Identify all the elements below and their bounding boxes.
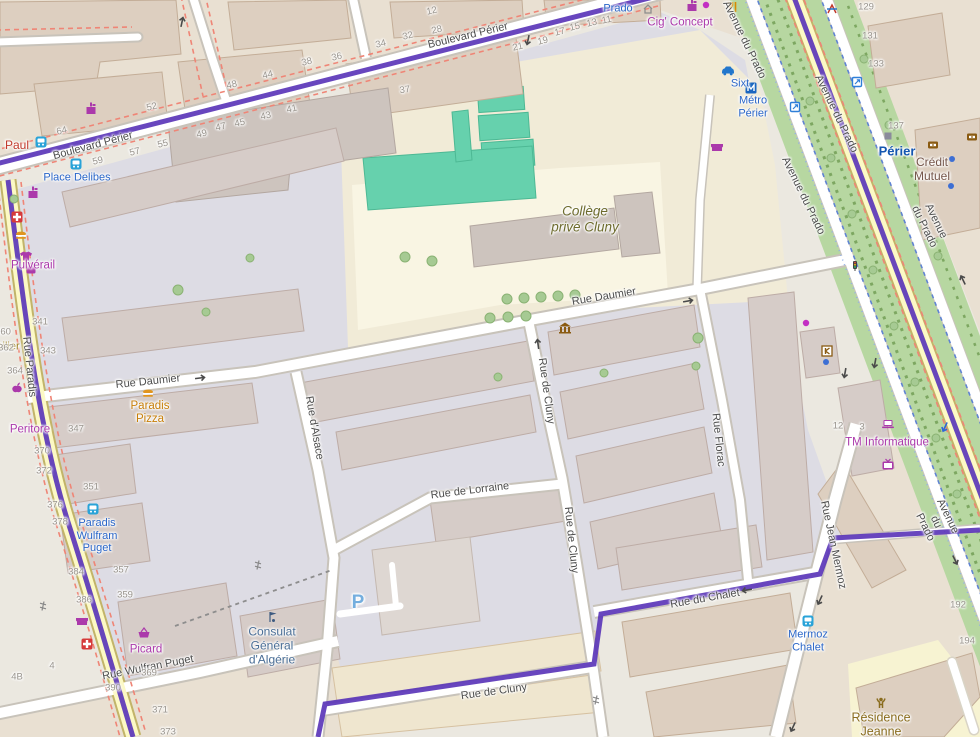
shop-icon [76,618,88,625]
clothes-shop-icon [20,252,32,261]
bag-shop-icon [27,264,36,274]
oneway-arrow-icon [535,339,542,349]
gate-icon [593,696,599,705]
oneway-arrow-icon [524,35,531,45]
metro-icon [746,83,757,94]
fast-food-icon [16,232,26,239]
computer-shop-icon [882,420,894,428]
atm-icon [967,134,977,141]
shop-building-icon [688,0,697,11]
oneway-arrow-icon [742,586,752,593]
oneway-arrow-icon [178,17,185,27]
traffic-signals-icon [853,261,857,271]
cycle-arrow-icon [941,421,950,432]
oneway-arrow-icon [959,275,968,286]
poi-dot-blue [948,183,954,189]
oneway-arrow-icon [683,297,693,304]
oneway-arrow-icon [816,594,825,605]
oneway-arrow-icon [195,375,205,382]
consulate-flag-icon [270,612,277,622]
atm-icon [928,142,938,149]
poi-dot-blue [823,359,829,365]
map-canvas[interactable]: Boulevard PérierBoulevard PérierAvenue d… [0,0,980,737]
interchange-icon [853,78,862,87]
bus-stop-icon [36,137,47,148]
playground-icon [827,5,837,13]
poi-dot-magenta [803,320,809,326]
pharmacy-icon [12,212,23,223]
supermarket-icon [139,628,150,638]
map-icon-layer [0,0,980,737]
kiosk-icon [822,346,832,356]
oneway-arrow-icon [950,554,959,565]
car-rental-icon [722,67,734,76]
bus-stop-icon [71,159,82,170]
department-store-icon [29,187,38,199]
greengrocer-icon [12,383,21,393]
shop-icon [711,144,723,151]
bus-stop-icon [88,504,99,515]
poi-dot-magenta [703,2,709,8]
fast-food-icon [143,390,153,397]
social-facility-icon [877,698,885,708]
interchange-icon [791,103,800,112]
gate-icon [40,602,46,611]
gate-icon [255,561,261,570]
oneway-arrow-icon [789,721,798,732]
restaurant-icon [729,2,736,12]
community-building-icon [559,323,571,334]
electronics-shop-icon [883,459,894,470]
department-store-icon [87,103,96,115]
pharmacy-icon [82,639,93,650]
oneway-arrow-icon [871,358,878,368]
bus-stop-icon [803,616,814,627]
oneway-arrow-icon [841,368,848,378]
home-icon [644,5,652,13]
poi-dot-blue [949,156,955,162]
station-marker [885,133,892,140]
